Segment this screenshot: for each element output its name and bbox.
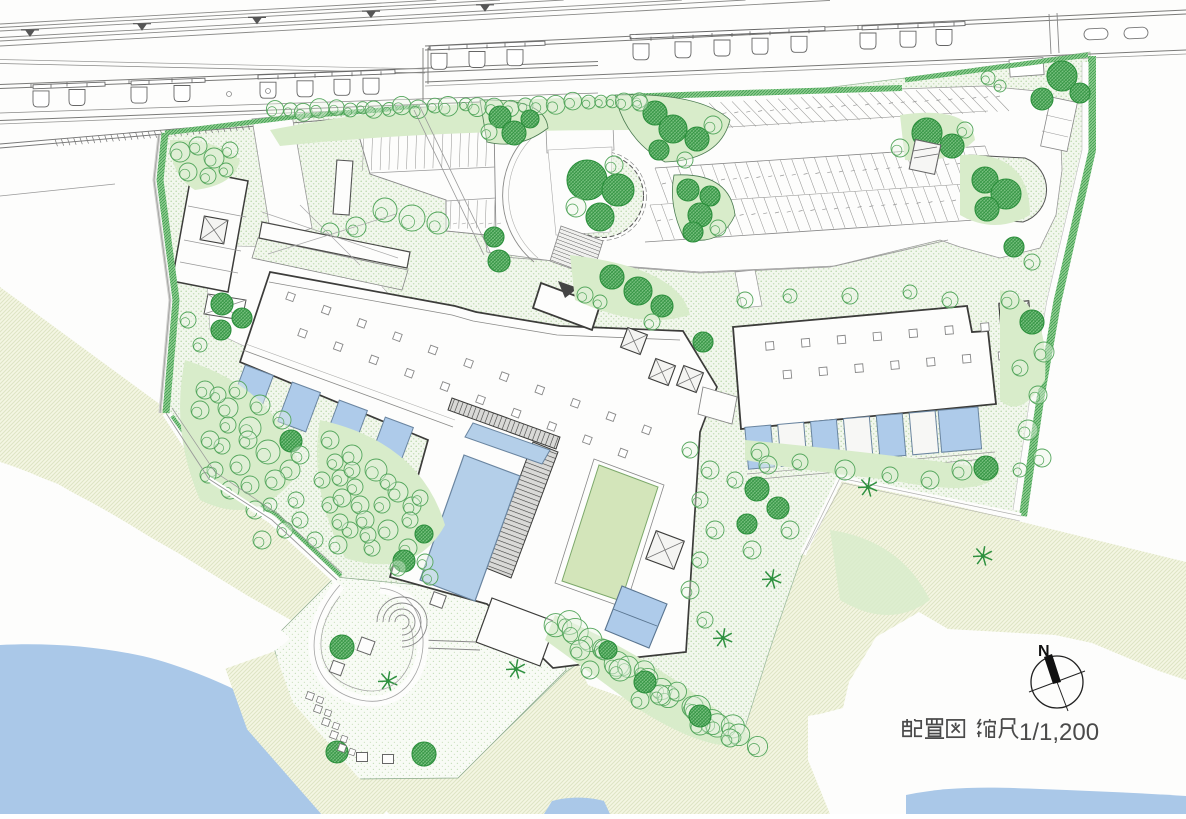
svg-text:N: N [1038, 643, 1050, 660]
svg-text:1/1,200: 1/1,200 [1019, 719, 1099, 746]
